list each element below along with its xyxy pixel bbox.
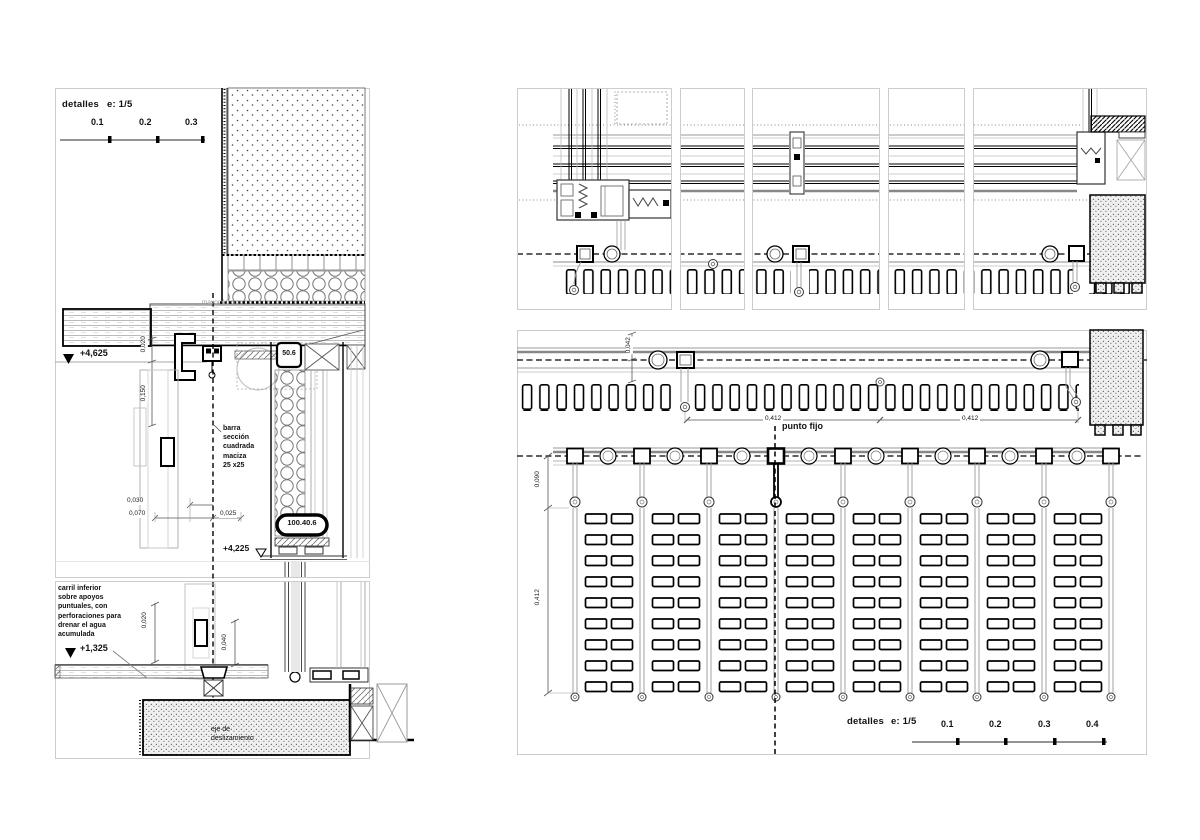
bottom-rail-stand xyxy=(185,584,215,670)
dim-chain-head xyxy=(148,336,156,427)
drop-rails xyxy=(573,463,1113,497)
drain-circle xyxy=(1072,398,1081,407)
dimension-label: 0,412 xyxy=(763,416,783,423)
dimension-label: 0,070 xyxy=(128,511,146,518)
scale-label: detalles xyxy=(62,100,99,110)
drop-circles xyxy=(570,497,1116,507)
masonry-wall xyxy=(1090,195,1145,283)
panel-break xyxy=(745,88,752,310)
scale-bar xyxy=(60,136,205,143)
drawing-sheet: detalles e: 1/5 0.1 0.2 0.3 +4,625 0,020… xyxy=(0,0,1200,840)
drain-circle xyxy=(795,288,804,297)
dimension-label: 0,040 xyxy=(222,633,229,651)
plan-drawing-top xyxy=(517,88,1147,310)
note-square-bar: barra sección cuadrada maciza 25 x25 xyxy=(223,424,271,470)
dimension-label: 0,150 xyxy=(141,384,148,402)
note-slab-thickness: mayor 10 cm xyxy=(202,300,240,307)
scale-tick: 0.1 xyxy=(941,720,954,729)
drain-circle xyxy=(681,403,690,412)
drainage-grille xyxy=(519,384,1079,411)
dimension-label: 0,020 xyxy=(141,335,148,353)
scale-ratio: e: 1/5 xyxy=(891,717,917,727)
insulation-hatch xyxy=(220,271,365,303)
fixed-point-label: punto fijo xyxy=(782,422,823,431)
fixing-square-bold xyxy=(768,449,784,464)
drain-circle xyxy=(709,260,718,269)
scale-tick: 0.3 xyxy=(1038,720,1051,729)
slab-hatch xyxy=(63,304,365,346)
dimension-label: 0,020 xyxy=(142,611,149,629)
insulation-hatch xyxy=(275,370,305,536)
profile-tag-506: 50.6 xyxy=(279,350,299,357)
scale-ratio: e: 1/5 xyxy=(107,100,133,110)
dimension-label: 0,042 xyxy=(626,336,633,354)
batten-row xyxy=(222,255,365,270)
profile-tag-100406: 100.40.6 xyxy=(278,519,326,527)
plan-drawing-bottom xyxy=(517,330,1147,755)
fixing-circle xyxy=(1042,246,1058,262)
scale-tick: 0.2 xyxy=(139,118,152,127)
panel-break xyxy=(672,88,680,310)
leader-line xyxy=(214,425,221,432)
fixing-square xyxy=(793,246,809,262)
dimension-label: 0,412 xyxy=(960,416,980,423)
grid-bottom-circles xyxy=(571,693,1115,701)
panel-break xyxy=(965,88,973,310)
panel-break xyxy=(880,88,888,310)
drain-circle xyxy=(570,286,579,295)
glazed-leaf-lower xyxy=(285,582,365,672)
top-guide-fitting xyxy=(203,346,221,378)
level-label-mid: +4,225 xyxy=(223,544,249,553)
scale-label: detalles xyxy=(847,717,884,727)
fixing-squares xyxy=(567,449,1119,464)
fixing-square xyxy=(577,246,593,262)
dimension-label: 0,025 xyxy=(219,511,237,518)
dimension-label: 0,412 xyxy=(535,588,542,606)
section-detail-panel: detalles e: 1/5 0.1 0.2 0.3 +4,625 0,020… xyxy=(55,88,425,763)
level-marker-top xyxy=(55,354,207,364)
drain-circle xyxy=(1071,283,1080,292)
scale-tick: 0.1 xyxy=(91,118,104,127)
fixing-circle xyxy=(767,246,783,262)
fixing-square xyxy=(677,352,694,368)
note-sliding-axis: eje de deslizamiento xyxy=(211,725,254,743)
lower-fittings xyxy=(567,448,1119,507)
upper-rail xyxy=(517,348,1147,372)
fixing-circle xyxy=(604,246,620,262)
plan-detail-top-panel xyxy=(517,88,1147,310)
interlock-profile xyxy=(789,130,805,196)
note-bottom-rail: carril inferior sobre apoyos puntuales, … xyxy=(58,584,138,639)
grille-grid xyxy=(571,508,1115,693)
fixing-square xyxy=(1069,246,1084,261)
masonry-wall xyxy=(1090,330,1143,435)
level-label-bottom: +1,325 xyxy=(80,644,108,653)
dimension-label: 0,090 xyxy=(535,470,542,488)
level-label-top: +4,625 xyxy=(80,349,108,358)
scale-tick: 0.4 xyxy=(1086,720,1099,729)
paving-band xyxy=(55,665,268,678)
fixing-square xyxy=(1062,352,1078,367)
rail-support-cup xyxy=(201,667,227,696)
scale-tick: 0.2 xyxy=(989,720,1002,729)
drain-circle xyxy=(876,378,884,386)
dim-lines-left xyxy=(544,453,573,696)
level-triangle-icon xyxy=(65,648,76,658)
lintel-hatch xyxy=(1091,116,1145,132)
glazed-leaf xyxy=(285,562,305,577)
dimension-label: 0,030 xyxy=(126,498,144,505)
drainage-grille xyxy=(563,269,1137,294)
scale-bar xyxy=(912,738,1107,745)
scale-tick: 0.3 xyxy=(185,118,198,127)
plan-detail-bottom-panel: 0,042 0,412 0,412 punto fijo 0,090 0,412… xyxy=(517,330,1147,755)
corner-jamb-detail xyxy=(557,88,671,250)
